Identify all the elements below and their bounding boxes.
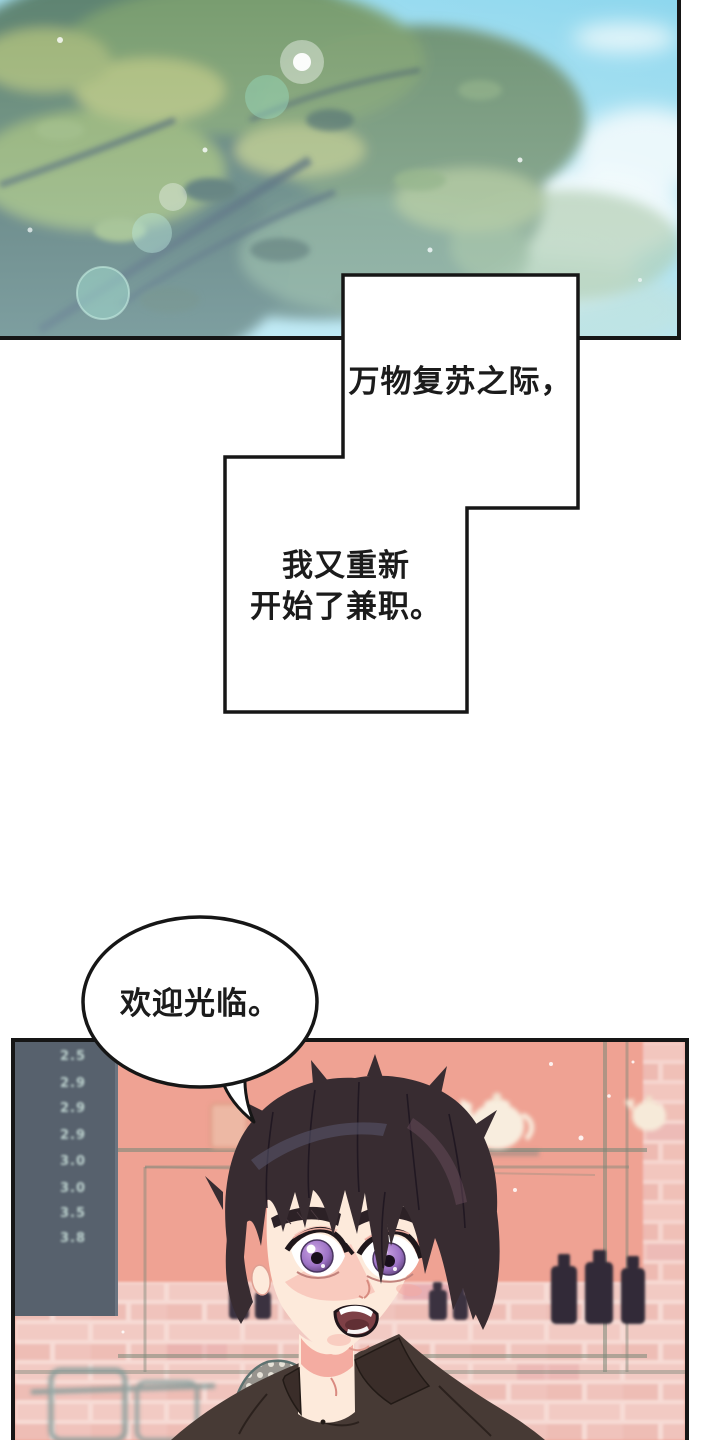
menu-price: 3.0 bbox=[40, 1181, 86, 1196]
narration-text-2-line2: 开始了兼职。 bbox=[225, 587, 467, 628]
narration-boxes-outline bbox=[221, 271, 583, 717]
narration-union-shape bbox=[225, 275, 578, 712]
narration-box-2: 我又重新 开始了兼职。 bbox=[225, 546, 467, 628]
iris-left bbox=[301, 1240, 333, 1272]
speech-bubble-text: 欢迎光临。 bbox=[120, 986, 280, 1022]
menu-price: 3.5 bbox=[40, 1206, 86, 1221]
speech-bubble-shape bbox=[68, 903, 322, 1143]
narration-text-1: 万物复苏之际， bbox=[349, 364, 573, 400]
shirt-button bbox=[321, 1420, 326, 1425]
speech-bubble: 欢迎光临。 bbox=[83, 978, 317, 1023]
comic-page: 万物复苏之际， 我又重新 开始了兼职。 bbox=[0, 0, 720, 1440]
narration-text-2-line1: 我又重新 bbox=[225, 546, 467, 587]
menu-price: 3.0 bbox=[40, 1154, 86, 1169]
narration-box-1: 万物复苏之际， bbox=[343, 362, 578, 403]
menu-price: 3.8 bbox=[40, 1231, 86, 1246]
